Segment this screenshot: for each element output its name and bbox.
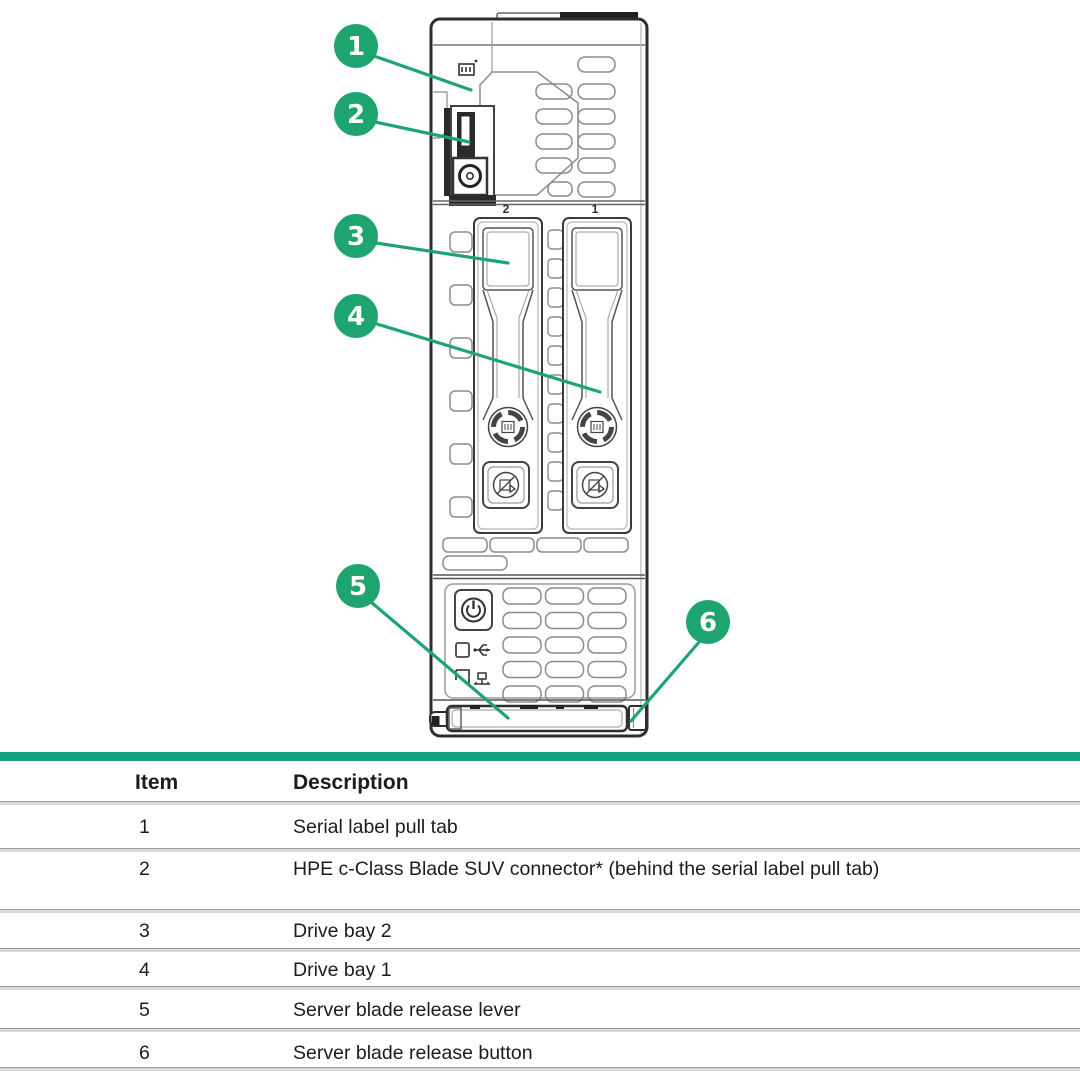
- table-header-item: Item: [135, 771, 293, 795]
- item-cell: 1: [139, 814, 293, 840]
- table-row: 1 Serial label pull tab: [0, 805, 1080, 848]
- table-top-accent-bar: [0, 752, 1080, 761]
- table-row: 5 Server blade release lever: [0, 990, 1080, 1028]
- callout-3: 3: [334, 214, 378, 258]
- callout-3-number: 3: [347, 222, 365, 252]
- description-cell: Server blade release button: [293, 1040, 938, 1066]
- table-header-row: Item Description: [0, 761, 1080, 801]
- blade-diagram: 2 1: [0, 0, 1080, 752]
- callout-2-number: 2: [347, 100, 365, 130]
- suv-connector-icon: [444, 106, 496, 206]
- description-cell: Server blade release lever: [293, 997, 938, 1023]
- table-header-description: Description: [293, 771, 409, 795]
- description-cell: Drive bay 1: [293, 957, 938, 983]
- item-cell: 6: [139, 1040, 293, 1066]
- item-cell: 3: [139, 918, 293, 944]
- callout-2: 2: [334, 92, 378, 136]
- callout-5: 5: [336, 564, 380, 608]
- callout-6: 6: [686, 600, 730, 644]
- page: 2 1: [0, 0, 1080, 1080]
- callout-4-number: 4: [347, 302, 365, 332]
- description-cell: Drive bay 2: [293, 918, 938, 944]
- table-row: 6 Server blade release button: [0, 1032, 1080, 1067]
- description-cell: Serial label pull tab: [293, 814, 938, 840]
- legend-table: Item Description 1 Serial label pull tab…: [0, 752, 1080, 1071]
- callout-1-number: 1: [347, 32, 365, 62]
- table-row: 3 Drive bay 2: [0, 913, 1080, 948]
- table-divider: [0, 1067, 1080, 1071]
- item-cell: 2: [139, 856, 293, 882]
- callout-5-number: 5: [349, 572, 367, 602]
- item-cell: 4: [139, 957, 293, 983]
- blade-diagram-svg: 2 1: [0, 0, 1080, 752]
- item-cell: 5: [139, 997, 293, 1023]
- drive-bay-2-label: 2: [503, 202, 510, 216]
- drive-bay-1-label: 1: [592, 202, 599, 216]
- callout-6-number: 6: [699, 608, 717, 638]
- callout-1: 1: [334, 24, 378, 68]
- table-row: 4 Drive bay 1: [0, 952, 1080, 986]
- description-cell: HPE c-Class Blade SUV connector* (behind…: [293, 856, 938, 882]
- table-row: 2 HPE c-Class Blade SUV connector* (behi…: [0, 852, 1080, 909]
- callout-4: 4: [334, 294, 378, 338]
